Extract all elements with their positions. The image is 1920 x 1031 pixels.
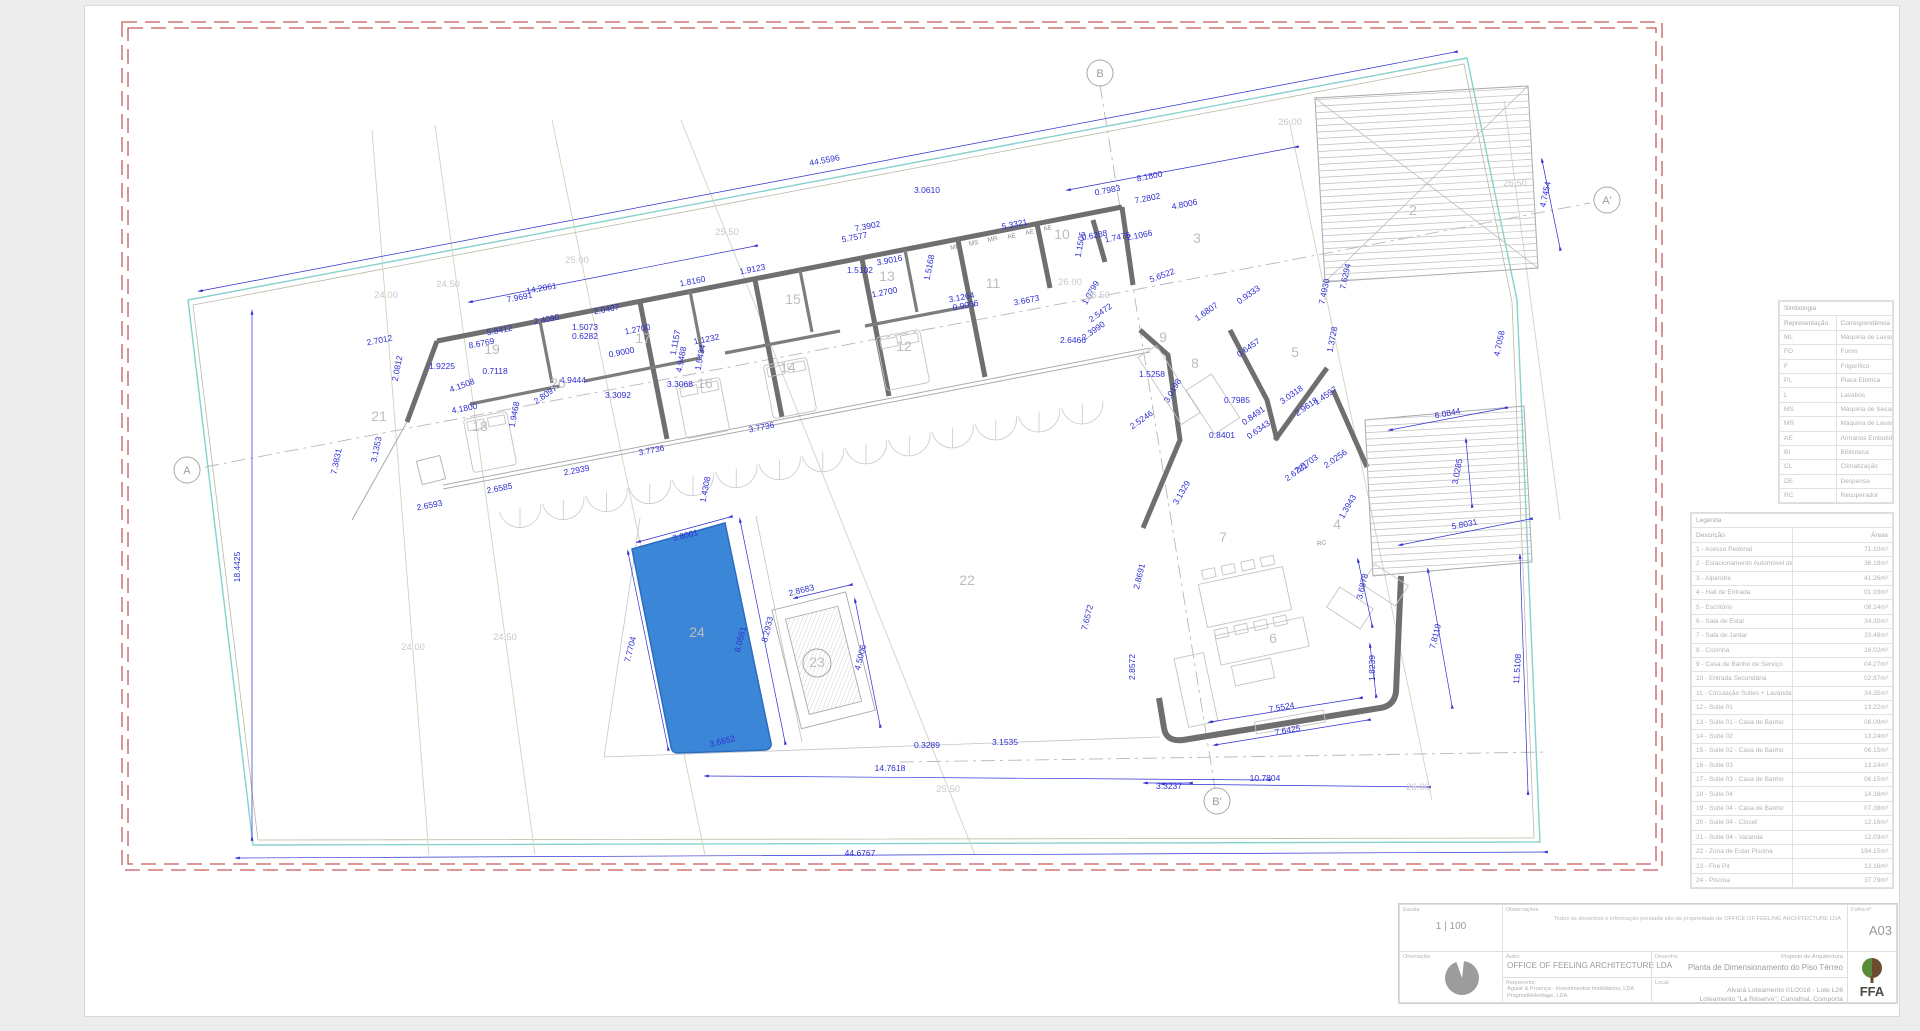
svg-text:B': B' (1212, 796, 1221, 808)
svg-text:A: A (183, 465, 191, 477)
table-row: 16 - Suite 0313.24m² (1692, 758, 1893, 772)
closet-tag: MR (987, 235, 999, 244)
table-row: 17 - Suite 03 - Casa de Banho06.15m² (1692, 773, 1893, 787)
dimension-label: 7.2802 (1134, 191, 1162, 206)
dimension-label: 44.6767 (845, 848, 876, 858)
table-row: DEDespensa (1780, 474, 1893, 488)
location-cell: Local: Alvará Loteamento 01/2018 - Lote … (1651, 977, 1848, 1003)
dimension-label: 0.7118 (482, 366, 508, 376)
location-label: Local: (1655, 980, 1670, 986)
drawing-cell: Desenho: Projecto de Arquitectura Planta… (1651, 951, 1848, 978)
room-number: 22 (959, 572, 975, 588)
dimension-label: 2.5246 (1128, 408, 1155, 431)
dimension-label: 4.8006 (1171, 197, 1199, 212)
orientation-label: Orientação: (1403, 954, 1431, 960)
table-row: 7 - Sala de Jantar33.48m² (1692, 629, 1893, 643)
notes-label: Observações (1506, 907, 1538, 913)
stairs-deck (1360, 406, 1540, 596)
room-number: 14 (780, 359, 796, 375)
room-number: 21 (371, 408, 387, 424)
dimension-label: 1.5258 (1139, 369, 1165, 379)
interior-partitions (470, 250, 975, 404)
table-row: MSMáquina de Secar Roupa (1780, 402, 1893, 416)
closet-tag: AE (1007, 232, 1017, 241)
dimension-label: 0.6457 (1235, 336, 1262, 359)
room-number: 12 (896, 338, 912, 354)
table-row: 18 - Suite 0414.38m² (1692, 787, 1893, 801)
svg-text:FFA: FFA (1860, 984, 1885, 999)
legend-title: Legenda (1692, 514, 1893, 528)
dimension-label: 7.7704 (622, 635, 638, 663)
dimension-label: 3.1535 (992, 737, 1018, 747)
client-line2: PragmatikHeritage, LDA (1507, 993, 1567, 999)
dimension-label: 0.7983 (1094, 183, 1122, 198)
dimension-label: 0.9333 (1235, 283, 1262, 306)
title-block: Escala 1 | 100 Observações Todos os dese… (1398, 903, 1898, 1004)
symbols-col-cor: Correspondência (1836, 316, 1893, 330)
location-line2: Loteamento "La Réserve", Carvalhal, Comp… (1700, 996, 1843, 1003)
kitchen-counters (1138, 345, 1240, 434)
notes-cell: Observações Todos os desenhos e informaç… (1502, 904, 1848, 952)
table-row: RCRecuperador (1780, 489, 1893, 503)
author-value: OFFICE OF FEELING ARCHITECTURE LDA (1507, 961, 1672, 970)
contour-label: 24.50 (493, 632, 517, 643)
table-row: 15 - Suite 02 - Casa de Banho06.15m² (1692, 744, 1893, 758)
dimension-label: 7.8119 (1427, 622, 1443, 649)
dimension-label: 6.0844 (1434, 406, 1462, 421)
dimension-label: 1.9225 (429, 361, 455, 371)
dimension-labels: 44.55963.06108.18000.79837.28024.80067.3… (232, 152, 1553, 858)
contour-label: 24.00 (401, 642, 425, 653)
scale-cell: Escala 1 | 100 (1399, 904, 1503, 952)
room-number: 5 (1291, 344, 1299, 360)
closet-tag: MS (968, 239, 980, 248)
table-row: MRMáquina de Lavar Roupa (1780, 417, 1893, 431)
table-row: CLClimatização (1780, 460, 1893, 474)
dimension-label: 10.7804 (1250, 773, 1281, 783)
table-row: AEArmários Embutidos (1780, 431, 1893, 445)
dimension-label: 5.6522 (1148, 266, 1176, 284)
dimension-label: 5.8412 (486, 323, 514, 338)
dimension-label: 1.8239 (1367, 655, 1377, 681)
contour-label: 26.50 (1503, 178, 1527, 189)
drawing-label: Desenho: (1655, 954, 1679, 960)
dimension-label: 3.6673 (1013, 293, 1041, 308)
dining-table (1196, 554, 1295, 640)
dimension-label: 1.5434 (693, 343, 708, 371)
table-row: 14 - Suite 0213.24m² (1692, 729, 1893, 743)
contour-labels: 24.0024.5025.0025.5026.0026.5024.0024.50… (374, 117, 1527, 795)
location-line1: Alvará Loteamento 01/2018 - Lote L26 (1727, 987, 1843, 994)
contour-label: 24.50 (436, 279, 460, 290)
table-row: 4 - Hall de Entrada01.93m² (1692, 585, 1893, 599)
room-number: 9 (1159, 329, 1167, 345)
red-dashed-border (122, 22, 1662, 870)
dimension-label: 1.2700 (871, 285, 899, 300)
dimension-label: 0.9000 (608, 345, 636, 360)
dimension-label: 1.5168 (922, 253, 937, 281)
table-row: 23 - Fire Pit13.16m² (1692, 859, 1893, 873)
dimension-label: 2.6466 (1060, 335, 1086, 345)
room-number: 7 (1219, 529, 1227, 545)
symbols-title: Simbologia (1780, 302, 1893, 316)
dimension-label: 14.7618 (875, 763, 906, 773)
dimension-label: 1.8160 (679, 274, 707, 289)
orientation-cell: Orientação: (1399, 951, 1503, 1003)
table-row: 24 - Piscina37.79m² (1692, 873, 1893, 887)
dimension-label: 0.8401 (1209, 430, 1235, 440)
svg-text:23: 23 (809, 654, 825, 670)
symbols-table: Simbologia Representação Correspondência… (1778, 300, 1894, 504)
room-number: 10 (1054, 226, 1070, 242)
legend-col-desc: Descrição (1692, 528, 1793, 542)
dimension-label: 3.0285 (1450, 457, 1465, 485)
section-marker: B' (1204, 788, 1230, 814)
dimension-label: 2.8572 (1127, 654, 1137, 680)
dimension-label: 1.4308 (698, 475, 713, 503)
symbols-col-rep: Representação (1780, 316, 1837, 330)
room-number: 11 (986, 275, 1001, 291)
table-row: FOForno (1780, 345, 1893, 359)
contour-label: 26.00 (1278, 117, 1302, 128)
table-row: 22 - Zona de Estar Piscina194.15m² (1692, 844, 1893, 858)
table-row: 20 - Suite 04 - Closet12.16m² (1692, 816, 1893, 830)
section-marker: B (1087, 60, 1113, 86)
project-type: Projecto de Arquitectura (1781, 954, 1843, 960)
drawing-title: Planta de Dimensionamento do Piso Térreo (1688, 963, 1843, 972)
scale-value: 1 | 100 (1400, 921, 1502, 932)
room-number: 18 (472, 418, 488, 434)
table-row: FFrigorífico (1780, 359, 1893, 373)
contour-label: 24.00 (374, 290, 398, 301)
floor-plan-svg: 44.55963.06108.18000.79837.28024.80067.3… (0, 0, 1920, 1031)
dimension-label: 7.6294 (1337, 262, 1352, 290)
table-row: BIBiblioteca (1780, 445, 1893, 459)
dimension-label: 8.1800 (1136, 169, 1164, 184)
dimension-label: 2.8691 (1131, 562, 1147, 590)
legend-col-area: Áreas (1792, 528, 1893, 542)
dimension-label: 2.6593 (416, 498, 444, 513)
dimension-lines (200, 52, 1560, 858)
sheet-number-cell: Folha nº A03 (1847, 904, 1897, 952)
section-lines (205, 85, 1590, 788)
room-number: 8 (1191, 355, 1199, 371)
dimension-label: 2.1066 (1126, 228, 1154, 243)
scale-label: Escala (1403, 907, 1420, 913)
dimension-label: 4.7454 (1537, 180, 1552, 208)
table-row: LLavabos (1780, 388, 1893, 402)
author-label: Autor: (1506, 954, 1521, 960)
table-row: 3 - Alpendre41.26m² (1692, 571, 1893, 585)
room-number: 3 (1193, 230, 1201, 246)
room-number: 20 (550, 375, 566, 391)
dimension-label: 2.6585 (486, 481, 514, 496)
room-number: 6 (1269, 630, 1277, 646)
room-number: 2 (1409, 202, 1417, 218)
contour-label: 25.50 (715, 227, 739, 238)
svg-text:B: B (1096, 68, 1103, 80)
table-row: PLPlaca Elétrica (1780, 373, 1893, 387)
contour-label: 25.00 (565, 255, 589, 266)
drawing-canvas: 44.55963.06108.18000.79837.28024.80067.3… (0, 0, 1920, 1031)
room-number: 24 (689, 624, 705, 640)
dimension-label: 1.9123 (739, 262, 767, 277)
north-indicator-icon (1440, 956, 1484, 1000)
dimension-label: 0.6282 (572, 331, 598, 341)
symbol-tags: MLMSMRAEAEAERC (950, 224, 1328, 548)
contour-label: 26.00 (1058, 277, 1082, 288)
client-line1: Aguiar & Proença - Investimentos Imobili… (1507, 986, 1634, 992)
author-cell: Autor: OFFICE OF FEELING ARCHITECTURE LD… (1502, 951, 1652, 978)
dimension-label: 1.1505 (1073, 230, 1088, 258)
section-marker: A' (1594, 187, 1620, 213)
table-row: 1 - Acesso Pedonal71.10m² (1692, 542, 1893, 556)
room-number: 13 (879, 268, 895, 284)
table-row: 13 - Suite 01 - Casa de Banho06.09m² (1692, 715, 1893, 729)
dimension-label: 7.4930 (1316, 277, 1331, 305)
dimension-label: 3.1329 (1171, 479, 1193, 507)
table-row: 8 - Cozinha16.02m² (1692, 643, 1893, 657)
notes-text: Todos os desenhos e informação prestada … (1509, 916, 1841, 922)
dimension-label: 8.2933 (759, 615, 775, 643)
dimension-label: 3.3237 (1156, 781, 1182, 791)
sheet-number-label: Folha nº (1851, 907, 1871, 913)
client-cell: Requerente: Aguiar & Proença - Investime… (1502, 977, 1652, 1003)
dimension-label: 1.6807 (1193, 300, 1220, 323)
room-number: 4 (1333, 516, 1341, 532)
dimension-label: 4.5006 (852, 643, 868, 671)
room-number: 15 (785, 291, 801, 307)
dimension-label: 11.5108 (1511, 653, 1523, 684)
dimension-label: 7.3831 (328, 447, 343, 475)
logo-cell: FFA (1847, 951, 1897, 1003)
contour-label: 26.50 (1086, 290, 1110, 301)
dimension-label: 4.7058 (1491, 329, 1506, 357)
contour-label: 26.00 (1406, 782, 1430, 793)
table-row: 19 - Suite 04 - Casa de Banho07.38m² (1692, 801, 1893, 815)
contour-label: 25.50 (936, 784, 960, 795)
dimension-label: 0.7985 (1224, 395, 1250, 405)
dimension-label: 3.0610 (914, 185, 940, 195)
table-row: 11 - Circulação Suites + Lavandaria/Zona… (1692, 686, 1893, 700)
dimension-label: 2.4090 (533, 312, 561, 327)
table-row: 5 - Escritório08.14m² (1692, 600, 1893, 614)
dimension-label: 3.0198 (1162, 377, 1184, 405)
table-row: 9 - Casa de Banho de Serviço04.27m² (1692, 657, 1893, 671)
dimension-label: 3.7736 (748, 420, 776, 435)
dimension-label: 1.5102 (847, 265, 873, 275)
dimension-label: 3.7736 (638, 443, 666, 458)
closet-tag: AE (1043, 224, 1053, 233)
dimension-label: 2.0256 (1322, 447, 1349, 470)
dimension-label: 3.3068 (667, 379, 693, 389)
room-number: 19 (484, 341, 500, 357)
dimension-label: 1.9468 (507, 400, 522, 428)
dimension-label: 0.3289 (914, 740, 940, 750)
room-number: 16 (697, 375, 713, 391)
table-row: 6 - Sala de Estar34.30m² (1692, 614, 1893, 628)
table-row: 12 - Suite 0113.22m² (1692, 701, 1893, 715)
dimension-label: 44.5596 (808, 152, 840, 168)
dimension-label: 3.6878 (1354, 572, 1370, 600)
closet-tag: AE (1025, 228, 1035, 237)
dimension-label: 18.4425 (232, 551, 242, 582)
dimension-label: 7.6572 (1079, 603, 1095, 631)
dimension-label: 7.9691 (506, 290, 534, 305)
table-row: 10 - Entrada Secundária02.87m² (1692, 672, 1893, 686)
dimension-label: 2.0407 (593, 302, 621, 317)
dimension-label: 2.8683 (787, 582, 815, 598)
dimension-label: 7.5524 (1268, 700, 1296, 714)
svg-text:A': A' (1602, 195, 1611, 207)
dimension-label: 2.0812 (390, 354, 405, 382)
closet-tag: RC (1316, 539, 1327, 548)
dimension-label: 5.7577 (841, 230, 869, 245)
ffa-logo: FFA (1848, 952, 1896, 1002)
table-row: MLMáquina de Lavar (1780, 330, 1893, 344)
dimension-label: 3.3092 (605, 390, 631, 400)
legend-table: Legenda Descrição Áreas 1 - Acesso Pedon… (1690, 512, 1894, 889)
room-numbers: 21182019171615141312111093258746222423 (371, 202, 1417, 677)
table-row: 2 - Estacionamento Automóvel de 2 Viatur… (1692, 557, 1893, 571)
room-number: 17 (635, 330, 651, 346)
section-marker: A (174, 457, 200, 483)
dimension-label: 3.1353 (368, 435, 383, 463)
table-row: 21 - Suite 04 - Varanda12.03m² (1692, 830, 1893, 844)
sheet-number-value: A03 (1848, 923, 1892, 938)
